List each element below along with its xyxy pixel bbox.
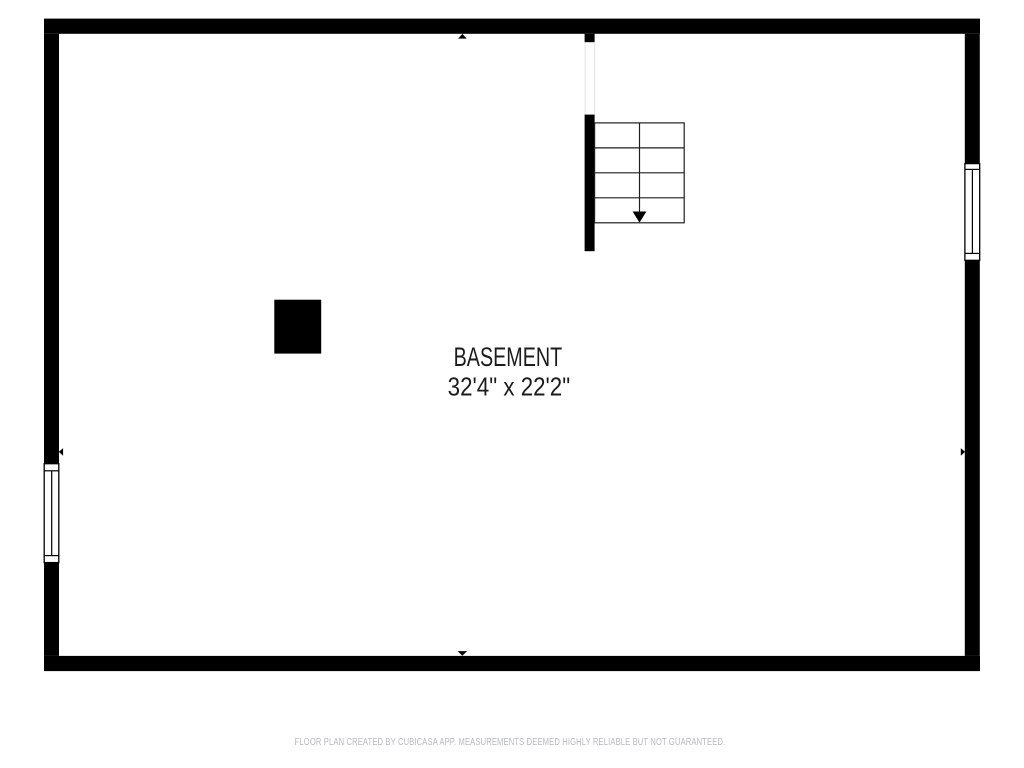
svg-text:32'4" x 22'2": 32'4" x 22'2" — [448, 373, 570, 402]
svg-text:FLOOR PLAN CREATED BY CUBICASA: FLOOR PLAN CREATED BY CUBICASA APP. MEAS… — [295, 736, 726, 747]
svg-text:BASEMENT: BASEMENT — [454, 342, 563, 373]
